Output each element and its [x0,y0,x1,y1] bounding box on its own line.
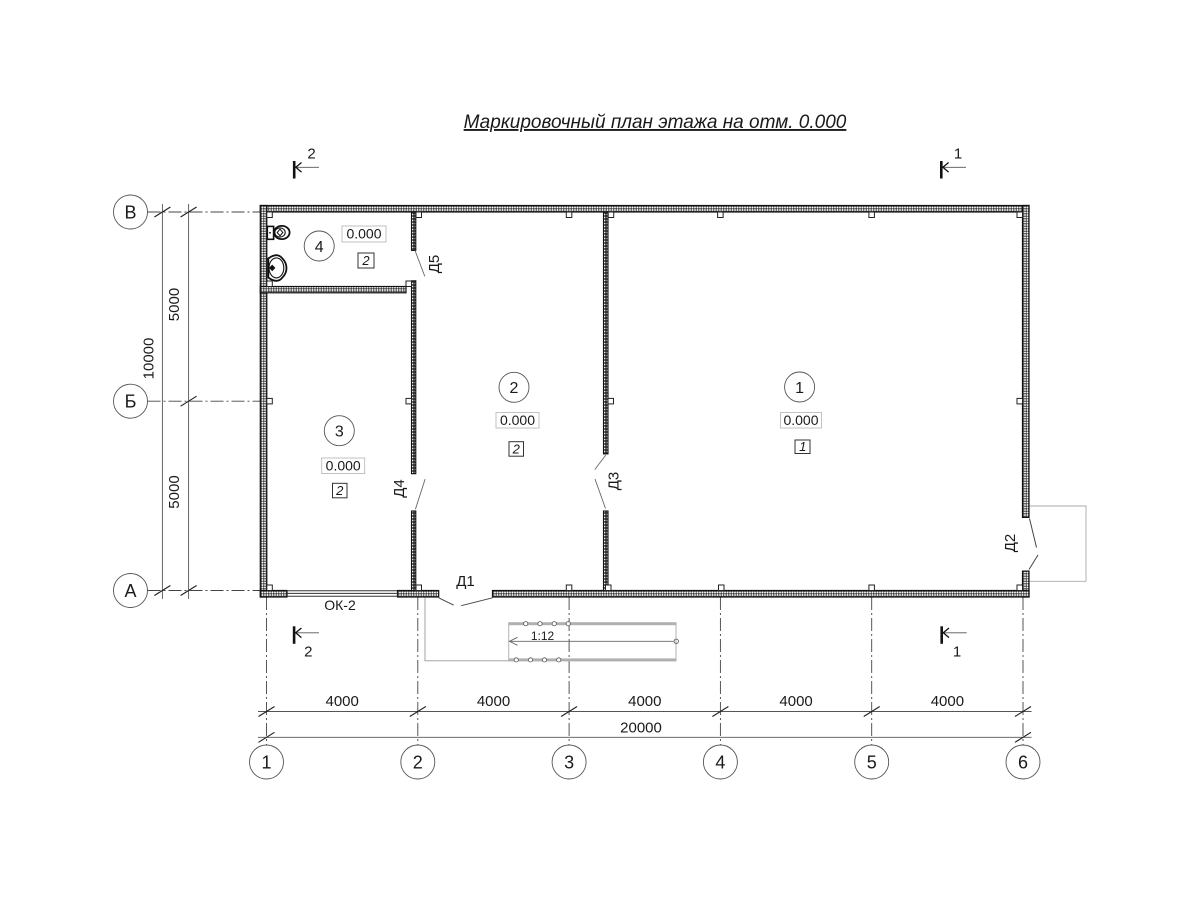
svg-text:1: 1 [799,439,806,454]
svg-text:4: 4 [315,239,324,256]
svg-text:3: 3 [335,424,344,441]
svg-text:Д3: Д3 [606,472,623,491]
svg-text:4: 4 [715,753,725,773]
svg-text:ОК-2: ОК-2 [324,597,356,613]
svg-text:Д2: Д2 [1002,534,1019,553]
svg-text:1: 1 [954,146,962,163]
svg-text:1:12: 1:12 [531,629,555,643]
svg-text:4000: 4000 [326,693,359,710]
svg-text:4000: 4000 [628,693,661,710]
svg-text:2: 2 [304,644,312,661]
svg-text:Д1: Д1 [456,573,475,590]
svg-text:6: 6 [1018,753,1028,773]
svg-text:5: 5 [867,753,877,773]
svg-text:Б: Б [125,392,137,412]
svg-text:2: 2 [510,380,519,397]
svg-text:2: 2 [361,253,370,268]
svg-text:5000: 5000 [166,288,183,321]
svg-text:2: 2 [512,442,521,457]
svg-text:1: 1 [953,644,961,661]
svg-text:1: 1 [261,753,271,773]
svg-text:0.000: 0.000 [783,412,818,428]
svg-text:В: В [124,203,136,223]
svg-text:4000: 4000 [779,693,812,710]
svg-text:3: 3 [564,753,574,773]
svg-text:1: 1 [795,380,804,397]
svg-text:4000: 4000 [931,693,964,710]
svg-text:2: 2 [413,753,423,773]
svg-text:Д4: Д4 [391,479,408,498]
svg-text:0.000: 0.000 [346,226,381,242]
svg-text:10000: 10000 [141,338,158,380]
svg-text:0.000: 0.000 [500,412,535,428]
svg-text:4000: 4000 [477,693,510,710]
svg-text:2: 2 [335,483,344,498]
svg-text:5000: 5000 [166,475,183,508]
svg-text:А: А [124,581,136,601]
svg-text:2: 2 [307,146,315,163]
svg-text:0.000: 0.000 [326,457,361,473]
svg-text:Маркировочный план этажа на от: Маркировочный план этажа на отм. 0.000 [464,112,847,133]
svg-text:Д5: Д5 [426,255,443,274]
svg-text:20000: 20000 [620,720,662,737]
